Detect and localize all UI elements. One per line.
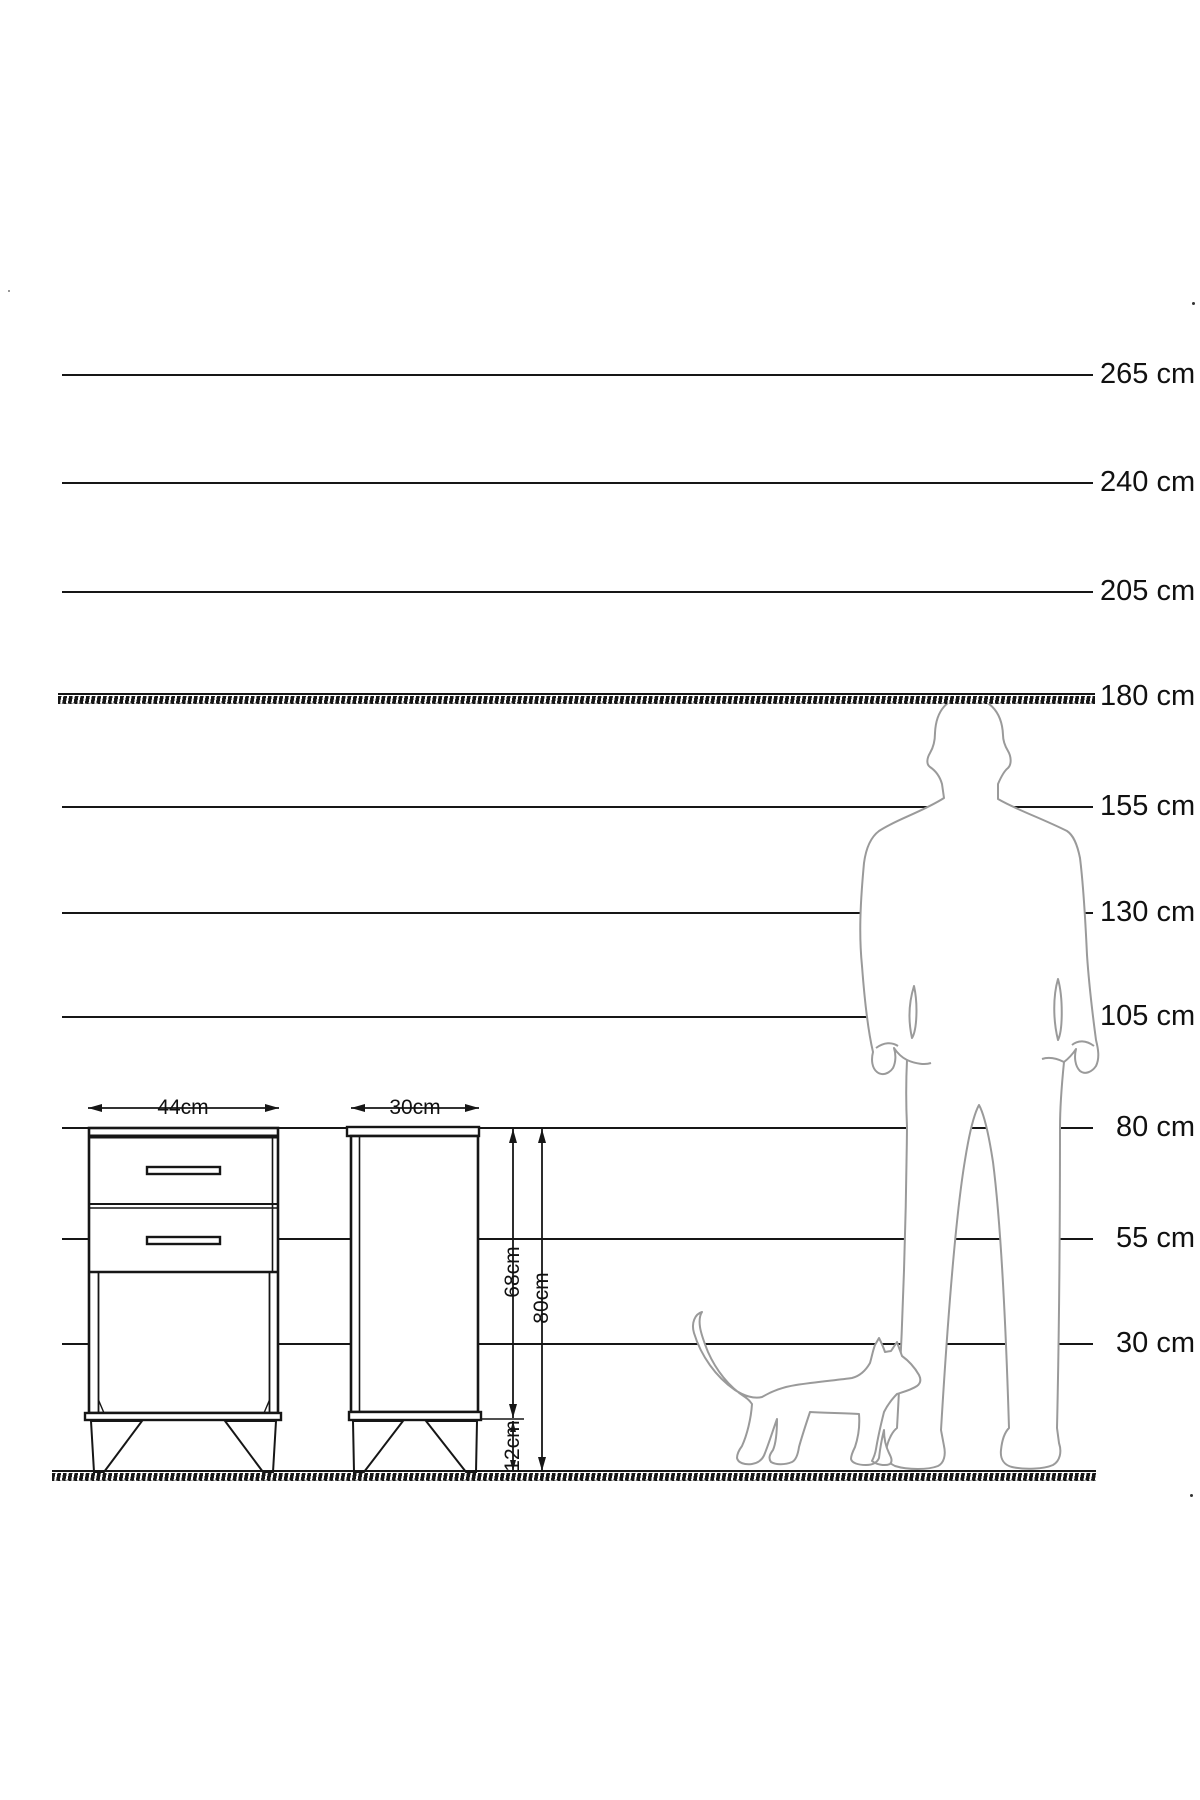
scale-label-180cm: 180 cm [1100, 679, 1195, 713]
artifact-dot [1190, 1494, 1193, 1497]
scale-label-80cm: 80 cm [1100, 1110, 1195, 1144]
dim-label-side-width: 30cm [355, 1095, 475, 1121]
ground-line-hatched [52, 1470, 1096, 1481]
dim-label-front-width: 44cm [123, 1095, 243, 1121]
furniture-size-comparison-diagram: 265 cm 240 cm 205 cm 180 cm 155 cm 130 c… [0, 0, 1200, 1800]
dim-label-leg-height: 12cm [500, 1386, 526, 1506]
scale-label-155cm: 155 cm [1100, 789, 1195, 823]
nightstand-front-view [85, 1128, 281, 1472]
scale-label-55cm: 55 cm [1100, 1221, 1195, 1255]
scale-line-180cm-hatched [58, 693, 1095, 704]
scale-label-205cm: 205 cm [1100, 574, 1195, 608]
artifact-dot [8, 290, 10, 292]
nightstand-side-view [347, 1127, 481, 1472]
artifact-dot [1192, 302, 1195, 305]
drawer-handle-top [147, 1167, 220, 1174]
scale-label-265cm: 265 cm [1100, 357, 1195, 391]
scale-label-130cm: 130 cm [1100, 895, 1195, 929]
scale-label-240cm: 240 cm [1100, 465, 1195, 499]
cat-silhouette [693, 1312, 920, 1465]
scale-label-30cm: 30 cm [1100, 1326, 1195, 1360]
dim-label-total-height: 80cm [529, 1238, 555, 1358]
figures-and-furniture-graphic [0, 0, 1200, 1800]
dim-label-body-height: 68cm [500, 1212, 526, 1332]
drawer-handle-bottom [147, 1237, 220, 1244]
scale-label-105cm: 105 cm [1100, 999, 1195, 1033]
